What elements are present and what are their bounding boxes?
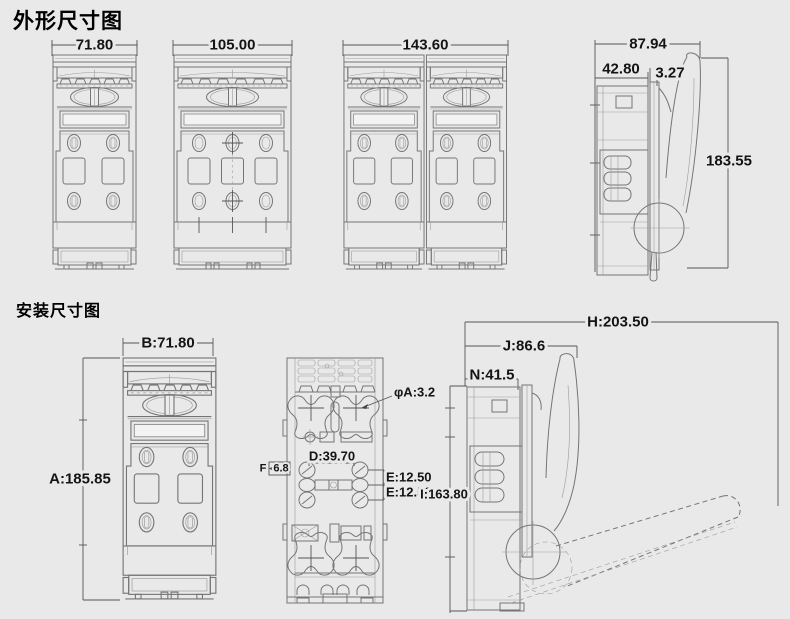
dim-install-front-height: A:185.85: [49, 471, 111, 488]
dim-width-double: 143.60: [403, 37, 449, 54]
dim-rear-mount-hole: φA:3.2: [394, 385, 435, 400]
view-outline-front-wide: 105.00: [173, 37, 292, 270]
dim-install-body-depth: N:41.5: [469, 367, 514, 384]
dim-install-handle-reach: J:86.6: [503, 338, 546, 355]
dim-side-overall-height: 183.55: [706, 153, 752, 170]
dimension-drawings: 71.80 105.00 143.60: [0, 0, 790, 619]
view-outline-front-narrow: 71.80: [52, 37, 137, 270]
dim-rear-pitch-upper: E:12.50: [386, 470, 432, 485]
dim-side-plate-thickness: 3.27: [655, 65, 684, 82]
dim-width-wide: 105.00: [210, 37, 256, 54]
dim-install-overall-with-handle: H:203.50: [587, 314, 649, 331]
view-install-rear: D:39.70 F 6.8 E:12.50 E:12.50 φA:3.2: [260, 358, 435, 603]
view-outline-side: 87.94 42.80 3.27 183.55: [590, 36, 752, 282]
dim-rear-slot-label: F: [260, 463, 267, 475]
dim-rear-slot-width: 6.8: [273, 463, 288, 475]
dim-side-overall-width: 87.94: [629, 36, 667, 53]
dim-install-mount-height: I:163.80: [420, 487, 468, 502]
dim-install-front-width: B:71.80: [141, 335, 194, 352]
view-install-front: B:71.80 A:185.85: [49, 335, 216, 601]
drawing-canvas: 外形尺寸图 安装尺寸图: [0, 0, 790, 619]
dim-side-body-depth: 42.80: [602, 61, 640, 78]
view-outline-front-double: 143.60: [343, 37, 508, 270]
dim-rear-hole-spacing: D:39.70: [309, 449, 355, 464]
view-install-side: H:203.50 J:86.6 N:41.5 I:163.80: [420, 314, 778, 614]
dim-width-narrow: 71.80: [76, 37, 114, 54]
